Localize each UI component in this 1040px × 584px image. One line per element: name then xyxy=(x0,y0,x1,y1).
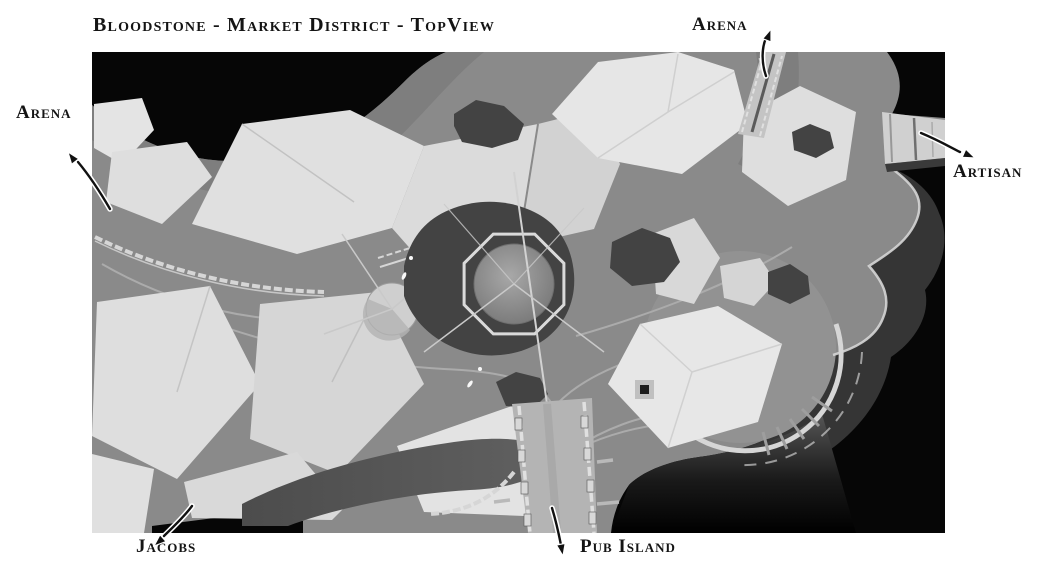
market-district-topview-svg xyxy=(92,52,945,533)
artisan-dock xyxy=(882,112,945,172)
label-arena-left: Arena xyxy=(16,102,72,124)
page-title: Bloodstone - Market District - TopView xyxy=(93,14,495,37)
chimney-flue xyxy=(640,385,649,394)
label-arena-top: Arena xyxy=(692,14,748,36)
label-jacobs: Jacobs xyxy=(136,536,196,558)
label-pub-island: Pub Island xyxy=(580,536,676,558)
map-render xyxy=(92,52,945,533)
page: Bloodstone - Market District - TopView xyxy=(0,0,1040,584)
label-artisan: Artisan xyxy=(953,161,1022,183)
dock-line xyxy=(932,122,933,157)
